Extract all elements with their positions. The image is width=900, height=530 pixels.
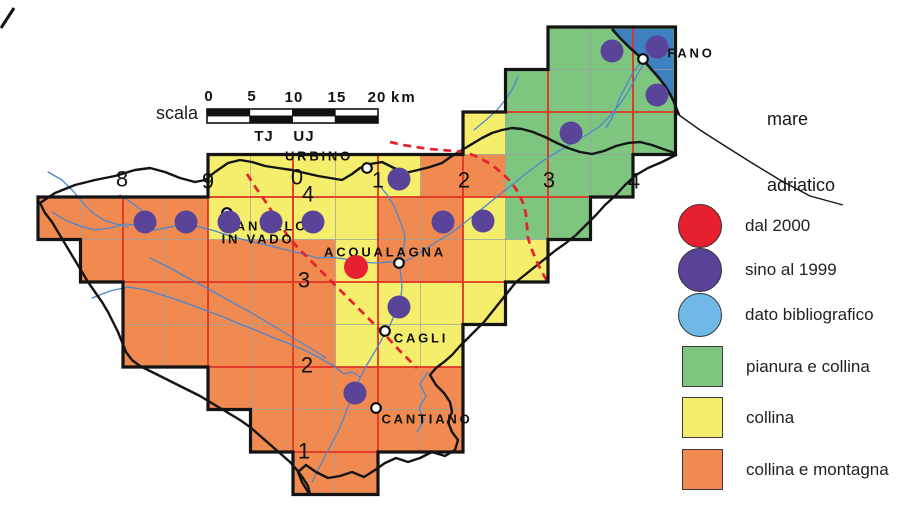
terrain-cell bbox=[506, 112, 549, 155]
record-dot-sino-al-1999 bbox=[302, 211, 325, 234]
scale-bar-segment bbox=[207, 109, 250, 116]
terrain-cell bbox=[336, 282, 379, 325]
terrain-cell bbox=[208, 367, 251, 410]
town-label: CAGLI bbox=[394, 331, 448, 346]
scale-bar-segment bbox=[207, 116, 250, 123]
sea-label-line2: adriatico bbox=[767, 174, 835, 196]
grid-number: 8 bbox=[116, 167, 128, 192]
terrain-cell bbox=[548, 27, 591, 70]
town-label: ACQUALAGNA bbox=[324, 245, 446, 260]
legend-label-pianura-e-collina: pianura e collina bbox=[746, 357, 870, 377]
scale-bar-segment bbox=[250, 116, 293, 123]
legend-label-dal-2000: dal 2000 bbox=[745, 216, 810, 236]
town-marker bbox=[371, 403, 381, 413]
record-dot-sino-al-1999 bbox=[134, 211, 157, 234]
record-dot-sino-al-1999 bbox=[344, 382, 367, 405]
grid-number: 2 bbox=[301, 353, 313, 378]
legend-item-sino-al-1999: sino al 1999 bbox=[678, 248, 837, 292]
terrain-cell bbox=[251, 367, 294, 410]
scale-unit: km bbox=[391, 89, 417, 106]
scale-tick-10: 10 bbox=[277, 89, 311, 106]
legend-swatch-dato-bibliografico bbox=[678, 293, 722, 337]
utm-zone-uj: UJ bbox=[284, 128, 324, 145]
record-dot-sino-al-1999 bbox=[560, 122, 583, 145]
town-label: FANO bbox=[667, 46, 714, 61]
record-dot-sino-al-1999 bbox=[646, 84, 669, 107]
record-dot-sino-al-1999 bbox=[175, 211, 198, 234]
map-page: URBINOANGELOIN VADOACQUALAGNACAGLICANTIA… bbox=[0, 0, 900, 530]
grid-number: 1 bbox=[298, 439, 310, 464]
legend-item-collina: collina bbox=[678, 397, 794, 438]
grid-number: 9 bbox=[202, 169, 214, 194]
record-dot-sino-al-1999 bbox=[646, 36, 669, 59]
legend-swatch-collina bbox=[682, 397, 723, 438]
scale-bar-segment bbox=[335, 109, 378, 116]
terrain-cell bbox=[293, 367, 336, 410]
legend-item-collina-e-montagna: collina e montagna bbox=[678, 449, 889, 490]
legend-label-collina-e-montagna: collina e montagna bbox=[746, 460, 889, 480]
grid-number: 4 bbox=[302, 182, 314, 207]
grid-number: 3 bbox=[543, 168, 555, 193]
terrain-cell bbox=[336, 197, 379, 240]
town-label: CANTIANO bbox=[381, 412, 472, 427]
sea-label-line1: mare bbox=[767, 108, 835, 130]
terrain-cell bbox=[166, 240, 209, 283]
terrain-cell bbox=[293, 325, 336, 368]
legend-item-dato-bibliografico: dato bibliografico bbox=[678, 293, 874, 337]
record-dot-sino-al-1999 bbox=[432, 211, 455, 234]
scale-tick-5: 5 bbox=[235, 88, 269, 105]
record-dot-sino-al-1999 bbox=[388, 296, 411, 319]
scale-tick-15: 15 bbox=[320, 89, 354, 106]
terrain-cell bbox=[208, 325, 251, 368]
terrain-cell bbox=[123, 240, 166, 283]
scale-bar-segment bbox=[335, 116, 378, 123]
record-dot-sino-al-1999 bbox=[601, 40, 624, 63]
record-dot-sino-al-1999 bbox=[260, 211, 283, 234]
terrain-cell bbox=[251, 282, 294, 325]
terrain-cell bbox=[633, 112, 676, 155]
grid-number: 4 bbox=[628, 169, 640, 194]
terrain-cell bbox=[506, 197, 549, 240]
scale-bar bbox=[207, 109, 378, 123]
record-dot-sino-al-1999 bbox=[388, 168, 411, 191]
legend-swatch-collina-e-montagna bbox=[682, 449, 723, 490]
grid-number: 3 bbox=[298, 268, 310, 293]
legend-swatch-sino-al-1999 bbox=[678, 248, 722, 292]
legend-label-collina: collina bbox=[746, 408, 794, 428]
town-marker bbox=[380, 326, 390, 336]
scale-bar-segment bbox=[250, 109, 293, 116]
terrain-cell bbox=[548, 70, 591, 113]
terrain-cell bbox=[421, 155, 464, 198]
terrain-cell bbox=[548, 197, 591, 240]
record-dot-sino-al-1999 bbox=[218, 211, 241, 234]
legend-item-pianura-e-collina: pianura e collina bbox=[678, 346, 870, 387]
terrain-cell bbox=[123, 325, 166, 368]
terrain-cell bbox=[591, 70, 634, 113]
legend-label-dato-bibliografico: dato bibliografico bbox=[745, 305, 874, 325]
record-dot-dal-2000 bbox=[344, 255, 368, 279]
terrain-cell bbox=[421, 282, 464, 325]
legend-swatch-dal-2000 bbox=[678, 204, 722, 248]
record-dot-sino-al-1999 bbox=[472, 210, 495, 233]
scale-tick-0: 0 bbox=[192, 88, 226, 105]
terrain-cell bbox=[336, 325, 379, 368]
scale-bar-segment bbox=[293, 116, 336, 123]
town-marker bbox=[362, 163, 372, 173]
legend-item-dal-2000: dal 2000 bbox=[678, 204, 810, 248]
terrain-cell bbox=[506, 155, 549, 198]
terrain-cell bbox=[463, 112, 506, 155]
grid-number: 1 bbox=[372, 168, 384, 193]
terrain-cell bbox=[166, 325, 209, 368]
terrain-cell bbox=[378, 367, 421, 410]
grid-number: 2 bbox=[458, 168, 470, 193]
utm-zone-tj: TJ bbox=[244, 128, 284, 145]
town-marker bbox=[638, 54, 648, 64]
town-label: URBINO bbox=[285, 149, 353, 164]
terrain-cell bbox=[123, 282, 166, 325]
terrain-cell bbox=[591, 155, 634, 198]
scale-tick-20: 20 bbox=[360, 89, 394, 106]
terrain-cell bbox=[336, 410, 379, 453]
legend-label-sino-al-1999: sino al 1999 bbox=[745, 260, 837, 280]
scale-bar-segment bbox=[293, 109, 336, 116]
town-label: IN VADO bbox=[222, 232, 295, 247]
legend-swatch-pianura-e-collina bbox=[682, 346, 723, 387]
terrain-cell bbox=[463, 240, 506, 283]
terrain-cell bbox=[208, 282, 251, 325]
town-marker bbox=[394, 258, 404, 268]
scale-label: scala bbox=[118, 103, 198, 124]
terrain-cell bbox=[81, 240, 124, 283]
corner-artifact bbox=[1, 8, 14, 28]
